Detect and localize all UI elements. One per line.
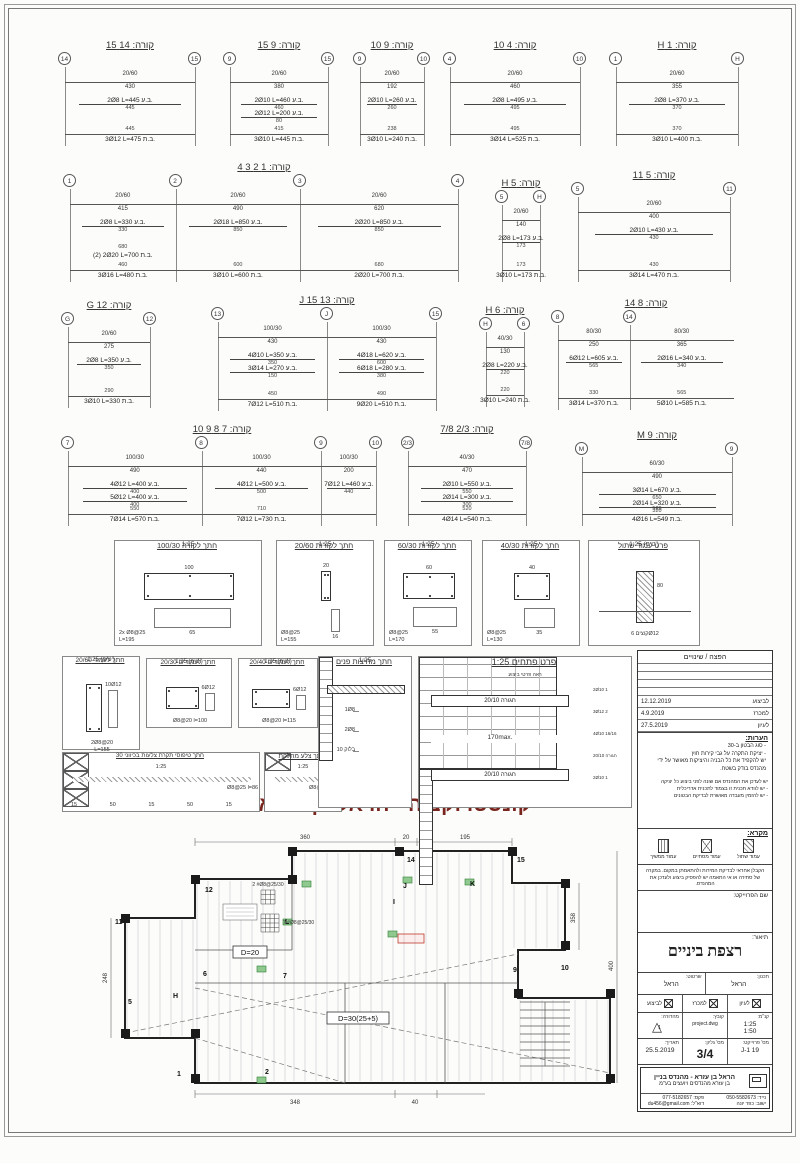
partition-label: בלוק 10 [325, 747, 355, 755]
top-rebar-length: 850 [189, 227, 286, 234]
bottom-rebar-label: 7Ø12 L=730 ב.ת. [214, 516, 310, 525]
stirrup-label: Ø8@20 l=115 [241, 718, 317, 726]
span-dimension: 40/30 [475, 336, 535, 344]
plan-dim-right1: 358 [571, 912, 577, 923]
bottom-rebar-length: 450 [229, 391, 316, 398]
span-dimension: 100/30 [319, 455, 379, 463]
beam-diagram: קורה: 1 H1H20/603552Ø8 L=370 ב.ע.3703703… [606, 40, 748, 152]
plan-dim-top2: 20 [403, 835, 410, 841]
top-rebar-label: 4Ø10 L=350 ב.ע. [230, 350, 315, 360]
section-dim-top: 100 [144, 565, 234, 572]
top-rebar-length: 173 [502, 243, 540, 250]
svg-text:11: 11 [115, 919, 123, 926]
status-checkboxes: לעיון למכרז לביצוע [638, 995, 772, 1013]
beam-diagram: קורה: 2/3 7/82/37/840/304702Ø10 L=550 ב.… [398, 424, 536, 532]
beam-top-line [558, 340, 734, 341]
section-rect [514, 573, 550, 600]
span-length: 250 [564, 342, 624, 350]
svg-text:H: H [173, 993, 178, 1000]
bottom-rebar-length: 290 [76, 388, 142, 395]
legend-item: עמוד שתול [737, 839, 760, 860]
section-scale: 1:25 [115, 541, 261, 548]
top-rebar-length: 495 [464, 105, 565, 112]
grid-bubble: 15 [321, 52, 334, 65]
span-dimension: 20/60 [647, 71, 707, 79]
drawing-title: רצפת ביניים [638, 943, 772, 961]
grid-bubble: 10 [369, 436, 382, 449]
meta-row-2: מס' פרוייקט: 19 J-1 מס' גליון: 3/4 תאריך… [638, 1039, 772, 1065]
beam-top-line [408, 466, 526, 467]
beam-top-line [68, 466, 376, 467]
revision-date: 12.12.2019 [641, 699, 671, 705]
grid-line [436, 322, 437, 411]
beam-top-line [230, 82, 328, 83]
bottom-rebar-length: 520 [420, 506, 514, 513]
section-scale: 1:25 [277, 541, 373, 548]
stirrup-label: Ø8@25 L=130 [487, 630, 533, 644]
svg-text:5: 5 [128, 999, 132, 1006]
grid-bubble: H [731, 52, 744, 65]
plan-dim-right2: 400 [609, 960, 615, 971]
file-label: קובץ: [686, 1014, 724, 1020]
span-length: 140 [491, 222, 551, 230]
grid-bubble: 4 [451, 174, 464, 187]
legend-title: מקרא: [638, 829, 772, 837]
span-dimension: 20/60 [208, 193, 268, 201]
plan-mesh-label-1: 2 #Ø8@25/30 [252, 882, 283, 888]
section-detail: חתך לקורות 60/301:256055Ø8@25 L=170 [384, 540, 472, 646]
plan-planted-columns [257, 877, 474, 1083]
span-length: 440 [232, 468, 292, 476]
beam-title: קורה: 5 11 [568, 170, 740, 181]
legend-label: עמוד מסתיים [693, 854, 721, 860]
bottom-rebar-length: 238 [366, 126, 417, 133]
top-rebar-length: 430 [595, 235, 714, 242]
top-rebar-length: 380 [339, 373, 424, 380]
span-length: 430 [243, 339, 303, 347]
grid-line [327, 322, 328, 411]
grid-bubble: 2/3 [401, 436, 414, 449]
top-rebar-length: 370 [629, 105, 724, 112]
grid-bubble: 8 [195, 436, 208, 449]
span-length: 490 [105, 468, 165, 476]
bottom-rebar-length: 460 [81, 262, 165, 269]
top-rebar-label: 2Ø8 L=173 ב.ע. [502, 233, 540, 243]
bottom-rebar-length: 495 [463, 126, 567, 133]
top-rebar-length: 330 [82, 227, 164, 234]
span-dimension: 20/60 [491, 209, 551, 217]
bottom-rebar-length: 490 [338, 391, 425, 398]
beam-diagram: קורה: 4 1041020/604602Ø8 L=495 ב.ע.49549… [440, 40, 590, 152]
column-section-detail: חתך לעמוד 20/601:25 (טיפ')10Ø122Ø8@20 L=… [62, 656, 140, 750]
section-subrect [296, 695, 306, 710]
revisions-header: הפצה / שינויים [638, 651, 772, 664]
grid-line [70, 189, 71, 282]
section-scale: 1:25 [319, 657, 411, 664]
plan-dim-bottom1: 348 [290, 1100, 301, 1106]
beam-bottom-line [218, 399, 436, 400]
bottom-rebar-length: 220 [483, 387, 527, 394]
revision-row: 27.5.2019 לעיון [638, 720, 772, 732]
plan-red-marker [398, 934, 424, 943]
grid-line [218, 322, 219, 411]
jamb-label: 4Ø10 16/16 [593, 731, 631, 739]
beam-bottom-line [68, 514, 376, 515]
beam-bottom-line [450, 134, 580, 135]
section-scale: 1:25 (טיפ') [589, 541, 699, 548]
revision-row-empty [638, 664, 772, 672]
beam-bottom-line [502, 270, 540, 271]
plan-outer-walls [125, 851, 610, 1083]
top-rebar-length: 440 [327, 489, 370, 496]
bottom-rebar-label: 4Ø16 L=549 ב.ת. [597, 516, 717, 525]
revision-row: 12.12.2019 לביצוע [638, 696, 772, 708]
rebar-dot [189, 595, 191, 597]
grid-bubble: 6 [517, 317, 530, 330]
bottom-rebar-length: 600 [188, 262, 288, 269]
beam-diagram: קורה: M 9M960/304903Ø14 L=670 ב.ע.6502Ø1… [572, 430, 742, 532]
bottom-rebar-label: 5Ø10 L=585 ב.ת. [640, 400, 724, 409]
sheet-number-value: 3/4 [686, 1047, 724, 1061]
rebar-dot [189, 575, 191, 577]
stirrup-label: 2Ø8@20 L=155 [65, 740, 139, 748]
beam-diagram: קורה: 14 15141520/604302Ø8 L=445 ב.ע.445… [55, 40, 205, 152]
section-title: חתך טיפוסי תקרת צלעות בכיווני 30 [63, 753, 257, 759]
stirrup-label: Ø8@20 l=100 [149, 718, 231, 726]
jamb-label: 2Ø10 1 [593, 687, 631, 695]
top-rebar-label: 2Ø8 L=495 ב.ע. [464, 95, 565, 105]
section-detail: חתך לקורות 40/301:254035Ø8@25 L=130 [482, 540, 580, 646]
top-rebar-length: 150 [230, 373, 315, 380]
date-cell: תאריך: 25.5.2019 [638, 1039, 682, 1064]
span-dimension: 80/30 [652, 329, 712, 337]
partition-section-detail: חתך מחיצות פנים1:251Ø82Ø8בלוק 10 [318, 656, 412, 808]
section-dim-top: 60 [403, 565, 455, 572]
legend-label: עמוד שתול [737, 854, 760, 860]
grid-line [526, 451, 527, 526]
grid-bubble: G [61, 312, 74, 325]
notes-section: הערות: - סוג הבטון ב-30 - יציקת התקרה על… [638, 733, 772, 829]
meta-row-1: קנ"מ: 1:25 1:50 קובץ: project.dwg מהדורה… [638, 1013, 772, 1039]
span-length: 192 [362, 84, 422, 92]
beam-diagram: קורה: 5 1151120/604002Ø10 L=430 ב.ע.4304… [568, 170, 740, 288]
stirrup-label: Ø8@25 l=86 [227, 785, 259, 793]
section-subrect [331, 609, 340, 632]
section-subrect [108, 690, 118, 728]
beam-top-line [65, 82, 195, 83]
grid-bubble: 1 [63, 174, 76, 187]
bottom-rebar-label: (2) 2Ø20 L=700 ב.ת. [81, 252, 165, 261]
jamb-label: חגורה 20/10 [593, 753, 631, 761]
plan-dim-bottom2: 40 [412, 1100, 419, 1106]
span-length: 490 [627, 474, 687, 482]
top-rebar-length: 500 [215, 489, 309, 496]
bottom-rebar-length: 415 [240, 126, 318, 133]
rebar-dot [147, 575, 149, 577]
beam-title: קורה: 4 10 [440, 40, 590, 51]
rebar-dot [546, 595, 548, 597]
top-rebar-length: 350 [77, 365, 141, 372]
span-dimension: 20/60 [624, 201, 684, 209]
rebar-dot [429, 595, 431, 597]
grid-line [582, 457, 583, 526]
beam-title: קורה: 13 J 15 [208, 295, 446, 306]
project-number-cell: מס' פרוייקט: 19 J-1 [727, 1039, 772, 1064]
beam-bottom-line [360, 134, 424, 135]
bottom-rebar-label: 3Ø14 L=370 ב.ת. [565, 400, 622, 409]
grid-bubble: 3 [293, 174, 306, 187]
svg-text:7: 7 [283, 973, 287, 980]
bottom-rebar-label: 3Ø16 L=480 ב.ת. [81, 272, 165, 281]
grid-bubble: 9 [223, 52, 236, 65]
rebar-dot [517, 595, 519, 597]
bottom-rebar-label: 3Ø10 L=400 ב.ת. [628, 136, 726, 145]
revision-label: לעיון [758, 723, 769, 729]
slab-dim: 15 [226, 802, 246, 809]
top-rebar-label: 2Ø8 L=370 ב.ע. [629, 95, 724, 105]
continuing-column-icon [658, 839, 669, 853]
revision-triangle-icon: △1 [652, 1021, 668, 1034]
plan-d30-label: D=30(25+5) [338, 1014, 379, 1023]
date-value: 25.5.2019 [641, 1047, 679, 1054]
beam-title: קורה: 9 15 [220, 40, 338, 51]
section-subrect [524, 608, 555, 628]
note-line-2: - יש להזמין מעבדה מאושרת לבדיקת הבטונים [638, 793, 772, 800]
note-line-2: יש לעדכן את המהנדס אם שונה לפני ביצוע כל… [638, 779, 772, 786]
scale-label: קנ"מ: [731, 1014, 769, 1020]
beam-bottom-line [230, 134, 328, 135]
beam-diagram: קורה: 5 H5H20/601402Ø8 L=173 ב.ע.1731733… [492, 178, 550, 288]
grid-line [738, 67, 739, 146]
svg-text:6: 6 [203, 971, 207, 978]
beam-diagram: קורה: 1 2 3 4123420/6041520/6049020/6062… [60, 162, 468, 288]
checkbox-execution: לביצוע [638, 995, 682, 1012]
checkbox-label: למכרז [692, 1001, 706, 1007]
slab-dim: 50 [187, 802, 207, 809]
planner-row: תכנון: הראל שרטוט: הראל [638, 973, 772, 995]
grid-line [580, 67, 581, 146]
section-subrect [205, 693, 215, 711]
scale-cell: קנ"מ: 1:25 1:50 [727, 1013, 772, 1038]
plan-dim-left1: 248 [103, 972, 109, 983]
legend-label: עמוד ממשיך [650, 854, 676, 860]
company-name: הראל בן עזרא - מהנדס בניין [643, 1074, 746, 1081]
top-rebar-length: 445 [79, 105, 180, 112]
grid-bubble: 15 [188, 52, 201, 65]
grid-bubble: H [533, 190, 546, 203]
beam-top-line [218, 337, 436, 338]
contractor-note: הקבלן אחראי לבדיקת המידות ולהתאמתן במקום… [638, 865, 772, 891]
span-length: 380 [249, 84, 309, 92]
beam-diagram: קורה: 8 1481480/3025080/303656Ø12 L=605 … [548, 298, 744, 416]
openings-detail: פרט פתחים 1:25ראה פרטי ביצועחגורה 20/10ח… [418, 656, 632, 808]
section-dim-bottom: 65 [154, 630, 231, 637]
span-length: 200 [319, 468, 379, 476]
beam-bottom-line [616, 134, 738, 135]
grid-bubble: 14 [58, 52, 71, 65]
slab-section-detail: חתך טיפוסי תקרת צלעות בכיווני 301:251550… [62, 752, 260, 812]
slab-dim: 15 [148, 802, 168, 809]
section-rect [252, 689, 290, 708]
legend-section: מקרא: עמוד שתול עמוד מסתיים עמוד ממשיך [638, 829, 772, 865]
stirrup-label: Ø8@25 L=170 [389, 630, 435, 644]
beam-top-line [450, 82, 580, 83]
bottom-rebar-length: 565 [640, 390, 724, 397]
bottom-rebar-label: 7Ø12 L=510 ב.ת. [229, 401, 316, 410]
bottom-rebar-length: 710 [214, 506, 310, 513]
top-rebar-length: 220 [486, 370, 524, 377]
grid-bubble: 15 [429, 307, 442, 320]
grid-bubble: 7 [61, 436, 74, 449]
section-scale: 1:25 [385, 541, 471, 548]
rebar-dot [98, 687, 100, 689]
top-rebar-label: 6Ø12 L=605 ב.ע. [566, 353, 622, 363]
span-length: 365 [652, 342, 712, 350]
plan-dim-top1: 360 [300, 835, 311, 841]
span-dimension: 20/60 [93, 193, 153, 201]
rebar-dot [89, 687, 91, 689]
revisions-table: הפצה / שינויים 12.12.2019 לביצוע 4.9.201… [638, 651, 772, 733]
section-title: פרט פתחים 1:25 [419, 657, 629, 667]
rebar-dot [451, 576, 453, 578]
top-rebar-label: 4Ø18 L=620 ב.ע. [339, 350, 424, 360]
jamb-label: 3Ø12 2 [593, 709, 631, 717]
section-rect [144, 573, 234, 600]
rebar-dot [89, 728, 91, 730]
rebar-dot [255, 691, 257, 693]
top-rebar-label: 2Ø10 L=260 ב.ע. [367, 95, 417, 105]
svg-text:9: 9 [513, 967, 517, 974]
beam-title: קורה: 1 H [606, 40, 748, 51]
grid-bubble: 4 [443, 52, 456, 65]
svg-text:2: 2 [265, 1069, 269, 1076]
rebar-dot [168, 705, 170, 707]
top-rebar-label: 2Ø8 L=220 ב.ע. [486, 360, 524, 370]
svg-text:I: I [393, 899, 395, 906]
rebar-dot [406, 595, 408, 597]
drafter-cell: שרטוט: הראל [638, 973, 705, 994]
beam-diagram: קורה: 13 J 1513J15100/30430100/304304Ø10… [208, 295, 446, 417]
planted-column-icon [743, 839, 754, 853]
bottom-rebar-label: 3Ø10 L=600 ב.ת. [188, 272, 288, 281]
company-logo [749, 1074, 767, 1088]
plan-grid-labels: 11 12 14 15 5 6 7 9 10 1 2 H J K L I [115, 857, 569, 1078]
section-subrect [154, 608, 231, 628]
top-rebar-label: 2Ø12 L=200 ב.ע. [241, 108, 317, 118]
company-box: הראל בן עזרא - מהנדס בניין בן עזרא מהנדס… [640, 1067, 770, 1109]
bottom-rebar-length: 330 [565, 390, 622, 397]
section-rect [166, 687, 199, 709]
plan-note-block [223, 904, 257, 920]
bottom-rebar-label: 3Ø10 L=240 ב.ת. [483, 397, 527, 406]
section-scale: 1:25 (טיפ') [239, 659, 317, 665]
date-label: תאריך: [641, 1040, 679, 1046]
rebar-dot [230, 595, 232, 597]
checkbox-tender: למכרז [682, 995, 727, 1012]
section-dim-bottom: 16 [331, 634, 340, 641]
grid-bubble: 10 [417, 52, 430, 65]
project-number-label: מס' פרוייקט: [731, 1040, 769, 1046]
company-subtitle: בן עזרא מהנדסים ויועצים בע"מ [643, 1081, 746, 1087]
bottom-rebar-length: 445 [78, 126, 182, 133]
opening-max-dim: 170max. [431, 735, 569, 743]
sheet-number-label: מס' גליון: [686, 1040, 724, 1046]
beam-top-line [70, 204, 458, 205]
drawing-sheet: קונסטרוקציה - הראל בן עזרא 2 #Ø8@25/30 [0, 0, 800, 1163]
grid-bubble: 7/8 [519, 436, 532, 449]
slab-top-flange [73, 777, 251, 782]
svg-text:15: 15 [517, 857, 525, 864]
leader-line [353, 751, 359, 752]
rebar-dot [451, 595, 453, 597]
top-rebar-length: 260 [367, 105, 417, 112]
ground-line [599, 611, 691, 612]
grid-bubble: 14 [623, 310, 636, 323]
description-label: תיאור: [638, 933, 772, 941]
grid-bubble: 11 [723, 182, 736, 195]
span-length: 470 [437, 468, 497, 476]
grid-line [730, 197, 731, 282]
beam-title: קורה: 8 14 [548, 298, 744, 309]
slab-dim: 50 [110, 802, 130, 809]
section-dim: 80 [657, 583, 673, 591]
planner-cell: תכנון: הראל [705, 973, 773, 994]
section-rect [321, 571, 331, 601]
grid-line [195, 67, 196, 146]
section-scale: 1:25 (טיפ') [147, 659, 231, 665]
project-name-label: שם הפרוייקט: [733, 893, 768, 899]
rebar-dot [195, 690, 197, 692]
section-detail: פרט עמוד שתול1:25 (טיפ')80קוצים 6Ø12 [588, 540, 700, 646]
edition-cell: מהדורה: △1 [638, 1013, 682, 1038]
top-rebar-label: 7Ø12 L=460 ב.ע. [327, 479, 370, 489]
section-subtitle: ראה פרטי ביצוע [419, 672, 631, 678]
svg-text:10: 10 [561, 965, 569, 972]
rebar-dot [98, 728, 100, 730]
checkbox-icon [709, 999, 718, 1008]
checkbox-review: לעיון [727, 995, 772, 1012]
top-rebar-label: 6Ø18 L=280 ב.ע. [339, 363, 424, 373]
rebar-dot [230, 575, 232, 577]
beam-top-line [486, 347, 524, 348]
revision-row-empty [638, 672, 772, 680]
bottom-rebar-length: 430 [593, 262, 715, 269]
span-length: 400 [624, 214, 684, 222]
note-line: - סוג הבטון ב-30 [638, 743, 772, 751]
top-rebar-label: 3Ø14 L=670 ב.ע. [599, 485, 716, 495]
span-length: 355 [647, 84, 707, 92]
section-detail: חתך לקורה 100/301:25100652x Ø8@25 L=195 [114, 540, 262, 646]
span-dimension: 40/30 [437, 455, 497, 463]
top-rebar-length: 565 [566, 363, 622, 370]
grid-line [458, 189, 459, 282]
bottom-rebar-length: 370 [628, 126, 726, 133]
revision-date: 4.9.2019 [641, 711, 664, 717]
grid-line [150, 327, 151, 408]
top-rebar-label: 2Ø8 L=330 ב.ע. [82, 217, 164, 227]
top-rebar-label: 2Ø10 L=550 ב.ע. [421, 479, 513, 489]
planner-value: הראל [709, 981, 770, 988]
span-dimension: 20/60 [349, 193, 409, 201]
svg-text:14: 14 [407, 857, 415, 864]
plan-mesh-icon-large [261, 914, 279, 932]
section-subrect [413, 607, 457, 627]
grid-bubble: 12 [143, 312, 156, 325]
svg-text:12: 12 [205, 887, 213, 894]
plan-ribs [127, 853, 608, 1081]
bottom-rebar-label: 3Ø12 L=475 ב.ת. [78, 136, 182, 145]
top-rebar-label: 5Ø12 L=400 ב.ע. [83, 492, 187, 502]
